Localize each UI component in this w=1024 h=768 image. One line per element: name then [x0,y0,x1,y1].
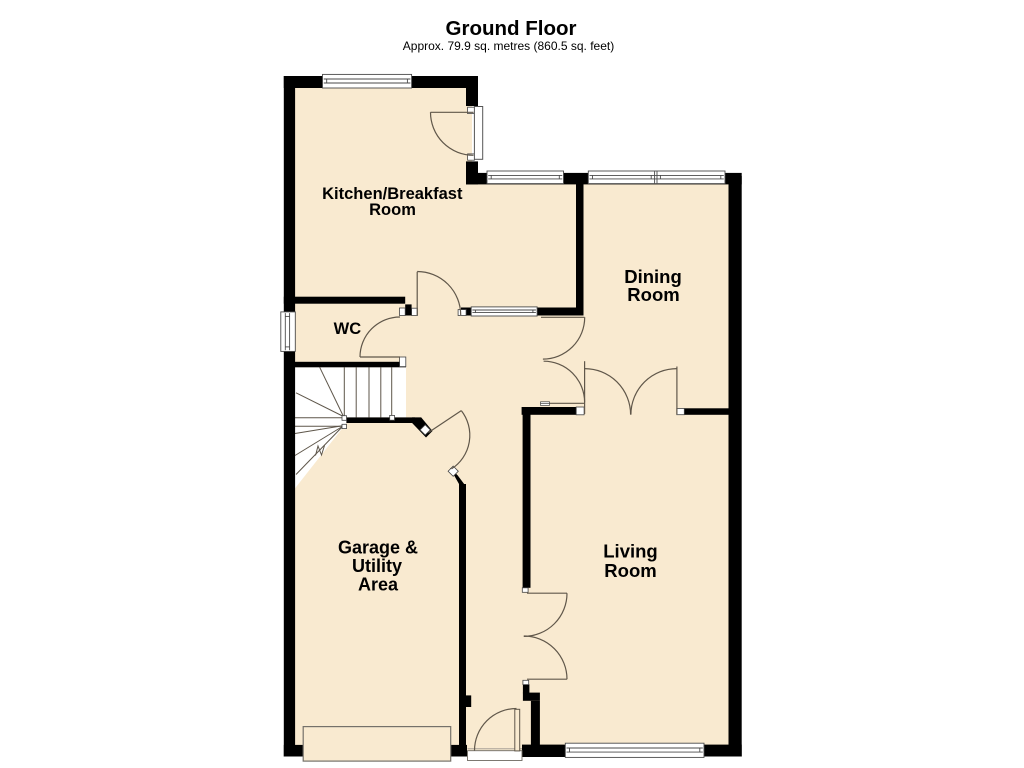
svg-text:Area: Area [358,574,399,594]
svg-text:Ground Floor: Ground Floor [446,17,577,40]
svg-text:WC: WC [334,320,362,338]
svg-text:Garage &: Garage & [338,537,418,557]
svg-text:Room: Room [604,560,656,581]
svg-text:Room: Room [627,284,679,305]
svg-text:Living: Living [603,541,657,562]
svg-text:Utility: Utility [352,556,402,576]
svg-text:Room: Room [369,201,416,219]
svg-text:Approx. 79.9 sq. metres (860.5: Approx. 79.9 sq. metres (860.5 sq. feet) [403,39,614,53]
